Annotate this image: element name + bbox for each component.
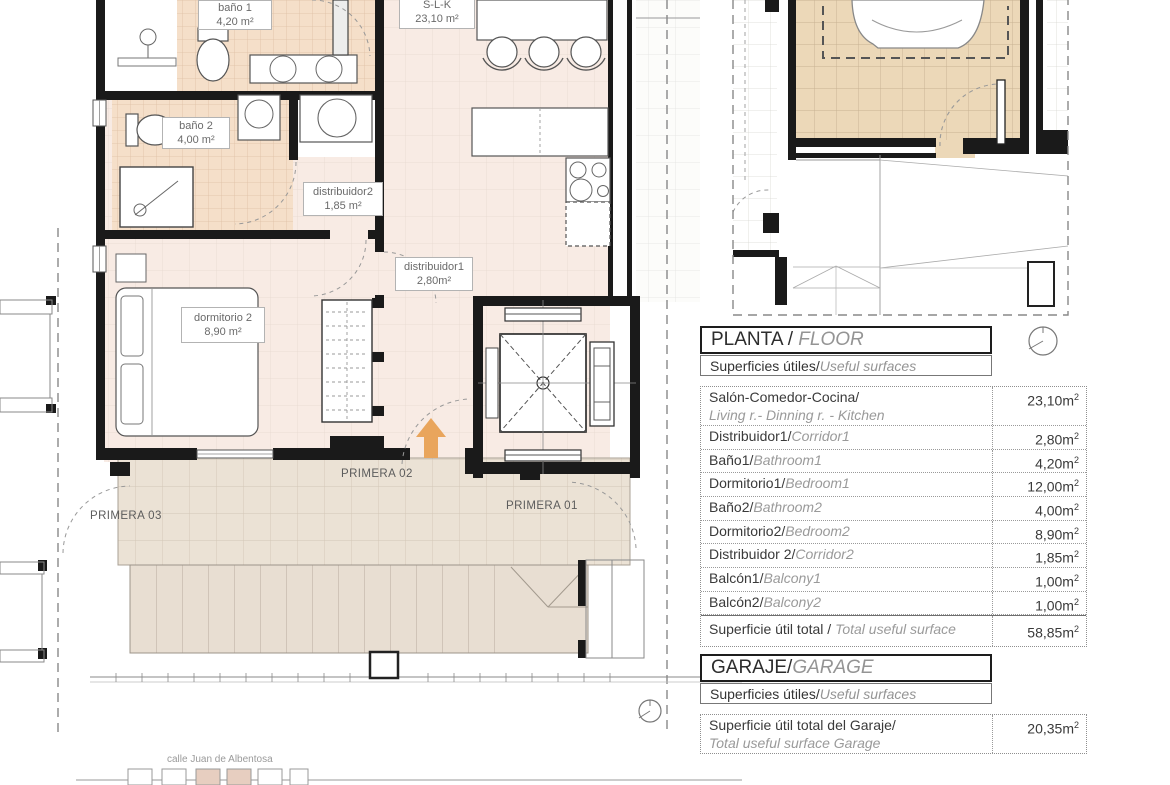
row-label-en: Corridor1: [791, 428, 849, 444]
floor-title-es: PLANTA /: [711, 329, 798, 351]
room-label-bano1: baño 1 4,20 m²: [198, 0, 272, 30]
room-area: 1,85 m²: [307, 199, 379, 213]
room-name: baño 1: [202, 1, 268, 15]
garage-subtitle-es: Superficies útiles/: [710, 686, 820, 702]
table-row: Salón-Comedor-Cocina/Living r.- Dinning …: [701, 387, 1086, 426]
street-elements: [76, 769, 742, 785]
row-label: Balcón2/Balcony2: [701, 592, 992, 615]
row-value: 2,80m2: [992, 426, 1086, 449]
row-label-es: Distribuidor 2/: [709, 546, 795, 562]
floor-section-title: PLANTA / FLOOR: [700, 326, 992, 354]
room-label-distribuidor1: distribuidor1 2,80m²: [395, 257, 473, 291]
row-label-es: Dormitorio1/: [709, 475, 785, 491]
room-area: 23,10 m²: [403, 12, 471, 26]
garage-section-title: GARAJE/GARAGE: [700, 654, 992, 682]
street-label: calle Juan de Albentosa: [167, 754, 273, 765]
row-label-en: Living r.- Dinning r. - Kitchen: [709, 406, 984, 424]
row-label-es: Balcón2/: [709, 594, 763, 610]
garage-section-subtitle: Superficies útiles/Useful surfaces: [700, 683, 992, 704]
row-value: 1,00m2: [992, 592, 1086, 615]
room-name: S-L-K: [403, 0, 471, 12]
table-row: Dormitorio1/Bedroom112,00m2: [701, 473, 1086, 497]
row-value: 1,00m2: [992, 568, 1086, 591]
row-value: 8,90m2: [992, 521, 1086, 544]
table-row: Distribuidor 2/Corridor21,85m2: [701, 544, 1086, 568]
row-label: Baño2/Bathroom2: [701, 497, 992, 520]
compass-icon: [639, 700, 661, 722]
row-label: Distribuidor1/Corridor1: [701, 426, 992, 449]
row-label-en: Bathroom2: [753, 499, 821, 515]
unit-label-primera01: PRIMERA 01: [506, 500, 578, 512]
row-label: Dormitorio2/Bedroom2: [701, 521, 992, 544]
row-label-en: Balcony2: [763, 594, 821, 610]
room-label-distribuidor2: distribuidor2 1,85 m²: [303, 182, 383, 216]
row-label-es: Balcón1/: [709, 570, 763, 586]
floor-subtitle-en: Useful surfaces: [820, 358, 916, 374]
row-label: Superficie útil total / Total useful sur…: [701, 616, 992, 646]
floor-title-en: FLOOR: [798, 329, 863, 351]
row-label-es: Superficie útil total /: [709, 621, 835, 637]
row-label-es: Dormitorio2/: [709, 523, 785, 539]
row-label-es: Salón-Comedor-Cocina/: [709, 389, 859, 405]
table-row: Superficie útil total del Garaje/Total u…: [701, 715, 1086, 753]
row-label: Balcón1/Balcony1: [701, 568, 992, 591]
garage-subtitle-en: Useful surfaces: [820, 686, 916, 702]
garage-surfaces-table: Superficie útil total del Garaje/Total u…: [700, 714, 1087, 754]
room-area: 4,00 m²: [166, 133, 226, 147]
row-value: 20,35m2: [992, 715, 1086, 753]
unit-label-primera03: PRIMERA 03: [90, 510, 162, 522]
row-label: Baño1/Bathroom1: [701, 450, 992, 473]
room-area: 4,20 m²: [202, 15, 268, 29]
floor-plan-page: baño 1 4,20 m² S-L-K 23,10 m² baño 2 4,0…: [0, 0, 1170, 785]
row-label-en: Bedroom1: [785, 475, 850, 491]
row-label-es: Baño1/: [709, 452, 753, 468]
table-row: Balcón1/Balcony11,00m2: [701, 568, 1086, 592]
room-name: dormitorio 2: [185, 311, 261, 325]
room-label-bano2: baño 2 4,00 m²: [162, 117, 230, 149]
room-area: 2,80m²: [399, 274, 469, 288]
row-label: Dormitorio1/Bedroom1: [701, 473, 992, 496]
table-row: Dormitorio2/Bedroom28,90m2: [701, 521, 1086, 545]
row-label-en: Total useful surface Garage: [709, 734, 984, 752]
floor-surfaces-table: Salón-Comedor-Cocina/Living r.- Dinning …: [700, 386, 1087, 647]
table-row: Baño1/Bathroom14,20m2: [701, 450, 1086, 474]
row-value: 4,00m2: [992, 497, 1086, 520]
unit-label-primera02: PRIMERA 02: [341, 468, 413, 480]
row-value: 4,20m2: [992, 450, 1086, 473]
table-row: Baño2/Bathroom24,00m2: [701, 497, 1086, 521]
row-label-es: Distribuidor1/: [709, 428, 791, 444]
row-label-es: Superficie útil total del Garaje/: [709, 717, 896, 733]
room-name: distribuidor2: [307, 185, 379, 199]
row-label-en: Total useful surface: [835, 621, 956, 637]
row-label-en: Bathroom1: [753, 452, 821, 468]
row-label: Superficie útil total del Garaje/Total u…: [701, 715, 992, 753]
compass-icon: [1029, 327, 1057, 355]
room-label-dormitorio2: dormitorio 2 8,90 m²: [181, 307, 265, 343]
garage-title-es: GARAJE/: [711, 657, 792, 679]
row-value: 58,85m2: [992, 616, 1086, 646]
room-label-slk: S-L-K 23,10 m²: [399, 0, 475, 29]
table-total-row: Superficie útil total / Total useful sur…: [701, 615, 1086, 646]
table-row: Distribuidor1/Corridor12,80m2: [701, 426, 1086, 450]
row-value: 1,85m2: [992, 544, 1086, 567]
row-label: Distribuidor 2/Corridor2: [701, 544, 992, 567]
floor-section-subtitle: Superficies útiles/Useful surfaces: [700, 355, 992, 376]
room-name: distribuidor1: [399, 260, 469, 274]
garage-title-en: GARAGE: [792, 657, 873, 679]
row-value: 23,10m2: [992, 387, 1086, 425]
floor-subtitle-es: Superficies útiles/: [710, 358, 820, 374]
row-value: 12,00m2: [992, 473, 1086, 496]
row-label-en: Corridor2: [795, 546, 853, 562]
table-row: Balcón2/Balcony21,00m2: [701, 592, 1086, 616]
row-label-es: Baño2/: [709, 499, 753, 515]
room-area: 8,90 m²: [185, 325, 261, 339]
row-label-en: Balcony1: [763, 570, 821, 586]
room-name: baño 2: [166, 119, 226, 133]
row-label: Salón-Comedor-Cocina/Living r.- Dinning …: [701, 387, 992, 425]
row-label-en: Bedroom2: [785, 523, 850, 539]
